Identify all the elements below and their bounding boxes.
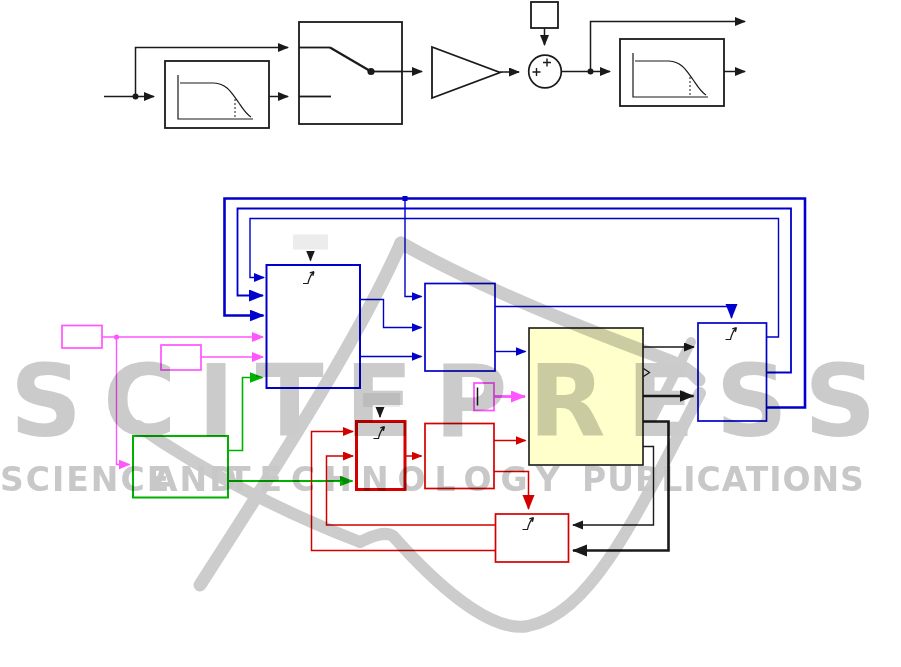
switch-pivot-dot (367, 68, 374, 75)
block-diagram-svg (0, 0, 901, 667)
right-blue-triggered-subsystem-block[interactable] (698, 323, 767, 421)
manual-switch-block[interactable] (299, 22, 402, 124)
blue-feedback-branch-to-middle[interactable] (405, 199, 422, 297)
magenta1-branch-to-green[interactable] (117, 337, 130, 465)
gray-annotation-box-2[interactable] (363, 393, 400, 407)
green-out1-signal[interactable] (228, 378, 263, 451)
model-canvas: SCITEPRESS SCIENCE AND TECHNOLOGY PUBLIC… (0, 0, 901, 667)
middle-blue-subsystem-block[interactable] (425, 284, 495, 372)
gray-annotation-box-1[interactable] (293, 235, 328, 250)
yellow-plant-subsystem-block[interactable] (529, 328, 643, 465)
magenta-source-1-block[interactable] (62, 326, 102, 349)
leftblue-out1-signal[interactable] (360, 300, 422, 328)
red-subsystem-2-block[interactable] (425, 424, 494, 489)
blue-junction-dot (403, 196, 408, 201)
left-blue-triggered-subsystem-block[interactable] (267, 265, 361, 388)
yellow-unconnected-port-chevron (644, 369, 650, 377)
gain-block[interactable] (432, 47, 500, 98)
middleblue-trigger-signal[interactable] (495, 307, 732, 319)
lowpass-filter-1-block[interactable] (165, 61, 269, 128)
top-junction-dot-2 (588, 69, 594, 75)
top-junction-dot-1 (133, 94, 139, 100)
magenta-source-2-block[interactable] (161, 345, 201, 370)
red2-to-red3-trigger-signal[interactable] (494, 472, 529, 510)
lowpass-filter-2-block[interactable] (620, 39, 724, 106)
magenta-junction-dot (114, 334, 119, 339)
green-subsystem-block[interactable] (133, 436, 228, 498)
magenta-small-block[interactable] (474, 383, 494, 411)
constant-block[interactable] (531, 2, 558, 28)
